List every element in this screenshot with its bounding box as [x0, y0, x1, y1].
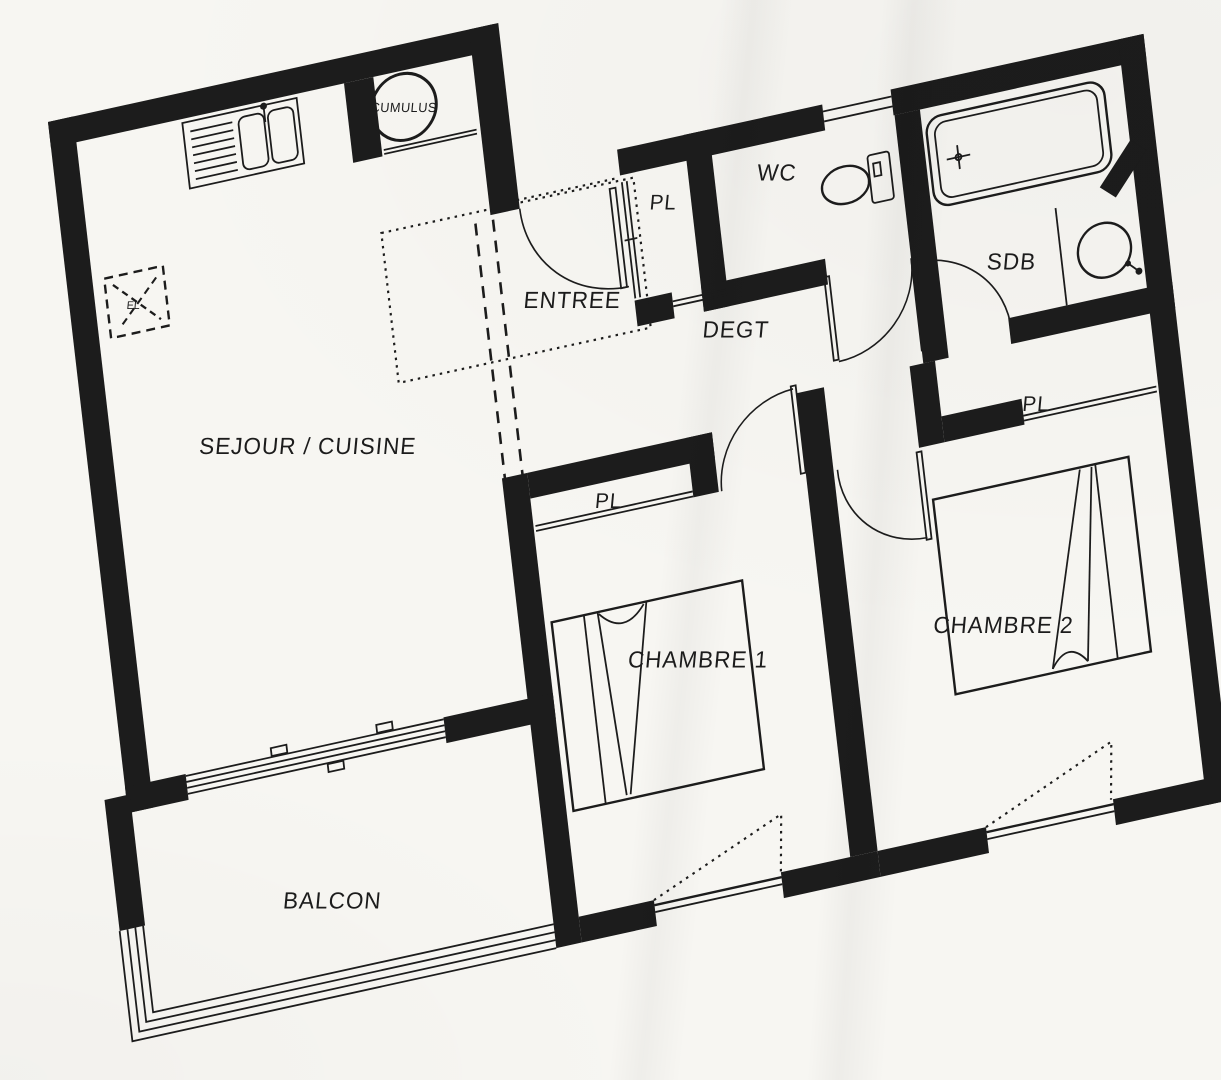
label-cumulus: CUMULUS — [370, 100, 438, 115]
toilet — [819, 151, 894, 214]
bed-chambre2 — [933, 457, 1151, 695]
wall-balcony-left — [104, 794, 145, 931]
room-label-wc: WC — [756, 159, 798, 185]
wc-door-arc — [829, 260, 921, 361]
chambre1-door — [712, 385, 806, 491]
bed-chambre1 — [552, 580, 764, 811]
chambre1-window — [647, 814, 789, 912]
wall-right-of-cumulus — [469, 23, 520, 215]
chambre2-door — [837, 451, 931, 557]
ceiling-beam-dashed-line — [493, 220, 523, 476]
room-label-chambre1: CHAMBRE 1 — [627, 646, 770, 672]
wall-pl2-left — [910, 361, 945, 448]
wall-top-sdb — [891, 34, 1147, 115]
wall-pl2-bottom — [941, 399, 1024, 442]
room-label-balcon: BALCON — [282, 887, 383, 913]
wall-wc-sdb-divider — [895, 110, 949, 364]
room-label-chambre2: CHAMBRE 2 — [932, 612, 1075, 638]
room-label-placard-chambre1: PL — [594, 490, 623, 513]
windows — [127, 65, 1120, 1009]
threshold-dotted-line — [517, 178, 619, 200]
room-label-sdb: SDB — [986, 248, 1038, 274]
walls — [27, 0, 1221, 1041]
label-electrical-panel: EL — [126, 300, 140, 312]
wall-pl1-right — [687, 432, 719, 497]
wall-bottom-ch1-left — [579, 900, 657, 942]
bay-window — [185, 710, 447, 802]
chambre2-door-leaf — [917, 451, 932, 539]
ceiling-beam-dashed-line — [475, 224, 505, 480]
floor-plan-svg: SEJOUR / CUISINE ENTREE PL WC DEGT SDB P… — [0, 0, 1221, 1080]
scanned-floor-plan: SEJOUR / CUISINE ENTREE PL WC DEGT SDB P… — [0, 0, 1221, 1080]
chambre1-door-arc — [712, 389, 803, 491]
balcony-railing — [120, 838, 557, 1041]
annotations — [104, 163, 664, 561]
wall-pl-entree-bottom — [635, 292, 675, 326]
wc-window — [823, 96, 893, 121]
room-label-degagement: DEGT — [702, 316, 771, 342]
wall-bottom-ch2-right — [1113, 774, 1221, 825]
room-label-placard-chambre2: PL — [1021, 393, 1050, 416]
wc-door-leaf — [824, 276, 839, 360]
chambre2-window — [979, 742, 1119, 840]
room-label-sejour-cuisine: SEJOUR / CUISINE — [198, 433, 417, 459]
chambre2-door-arc — [837, 452, 927, 555]
wall-left — [48, 116, 153, 813]
room-label-entree: ENTREE — [523, 287, 623, 313]
wc-door — [824, 258, 921, 363]
wall-chambres-divider — [797, 387, 878, 857]
room-label-placard-entree: PL — [649, 191, 678, 214]
wall-bottom-ch2-left — [878, 827, 989, 877]
wall-bottom-ch1-right — [781, 851, 881, 898]
wall-sdb-bottom — [1008, 282, 1175, 344]
washbasin — [1056, 191, 1145, 305]
